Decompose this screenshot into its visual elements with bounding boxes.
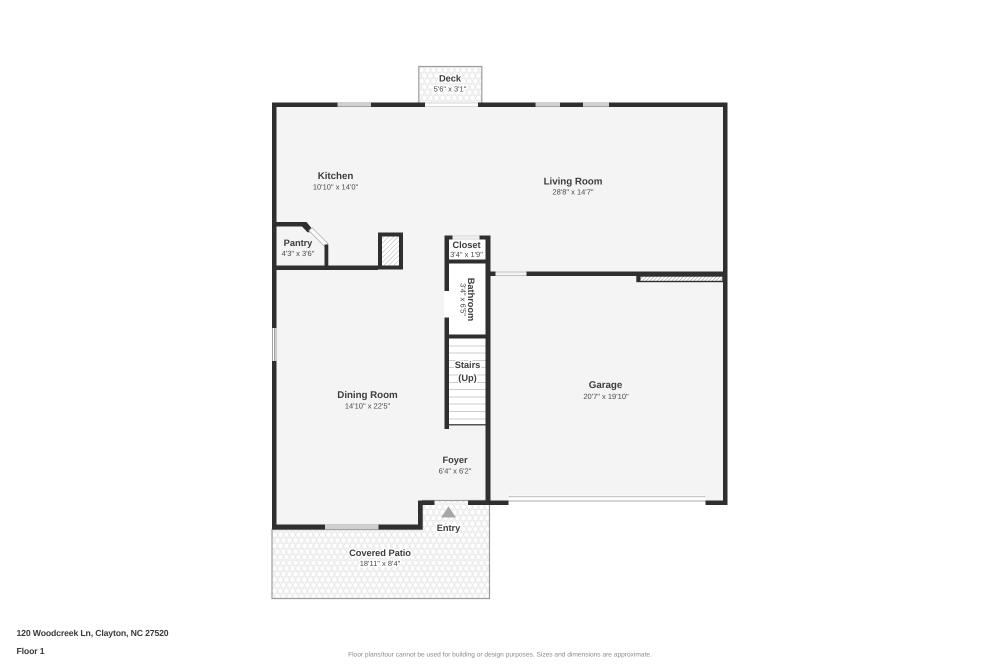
svg-text:Entry: Entry <box>437 523 461 533</box>
svg-text:Living Room: Living Room <box>544 177 603 188</box>
svg-text:10'10" x 14'0": 10'10" x 14'0" <box>313 183 359 192</box>
svg-text:28'8" x 14'7": 28'8" x 14'7" <box>552 188 593 197</box>
svg-text:Garage: Garage <box>589 380 623 391</box>
svg-text:3'4" x 6'5": 3'4" x 6'5" <box>459 283 468 316</box>
svg-text:4'3" x 3'6": 4'3" x 3'6" <box>282 249 315 258</box>
svg-text:Kitchen: Kitchen <box>318 171 354 182</box>
svg-text:Deck: Deck <box>439 74 462 84</box>
svg-text:(Up): (Up) <box>458 373 476 383</box>
svg-text:20'7" x 19'10": 20'7" x 19'10" <box>583 392 629 401</box>
svg-text:120 Woodcreek Ln, Clayton, NC: 120 Woodcreek Ln, Clayton, NC 27520 <box>17 628 169 638</box>
svg-text:Stairs: Stairs <box>455 360 481 370</box>
svg-text:Closet: Closet <box>452 240 480 250</box>
svg-text:Floor plans/tour cannot be use: Floor plans/tour cannot be used for buil… <box>348 652 652 659</box>
svg-text:Floor 1: Floor 1 <box>17 646 45 656</box>
svg-text:Pantry: Pantry <box>284 238 314 248</box>
svg-text:Covered Patio: Covered Patio <box>349 548 411 558</box>
svg-text:Dining Room: Dining Room <box>337 390 398 401</box>
svg-text:14'10" x 22'5": 14'10" x 22'5" <box>345 402 391 411</box>
svg-text:5'6" x 3'1": 5'6" x 3'1" <box>434 85 467 94</box>
svg-text:6'4" x 6'2": 6'4" x 6'2" <box>439 467 472 476</box>
svg-text:Foyer: Foyer <box>442 455 467 465</box>
svg-text:3'4" x 1'9": 3'4" x 1'9" <box>450 250 483 259</box>
svg-text:18'11" x 8'4": 18'11" x 8'4" <box>360 559 401 568</box>
